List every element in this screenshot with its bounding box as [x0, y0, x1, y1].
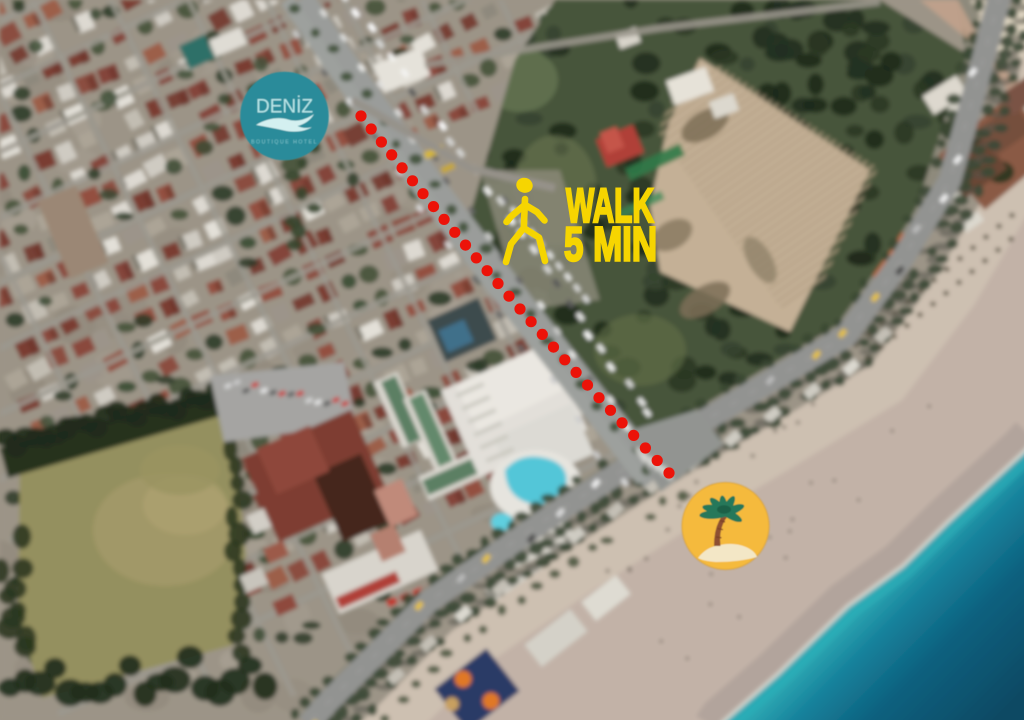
svg-text:5 MIN: 5 MIN — [564, 219, 657, 272]
svg-text:BOUTIQUE HOTEL: BOUTIQUE HOTEL — [251, 140, 318, 146]
svg-text:DENİZ: DENİZ — [256, 97, 313, 118]
